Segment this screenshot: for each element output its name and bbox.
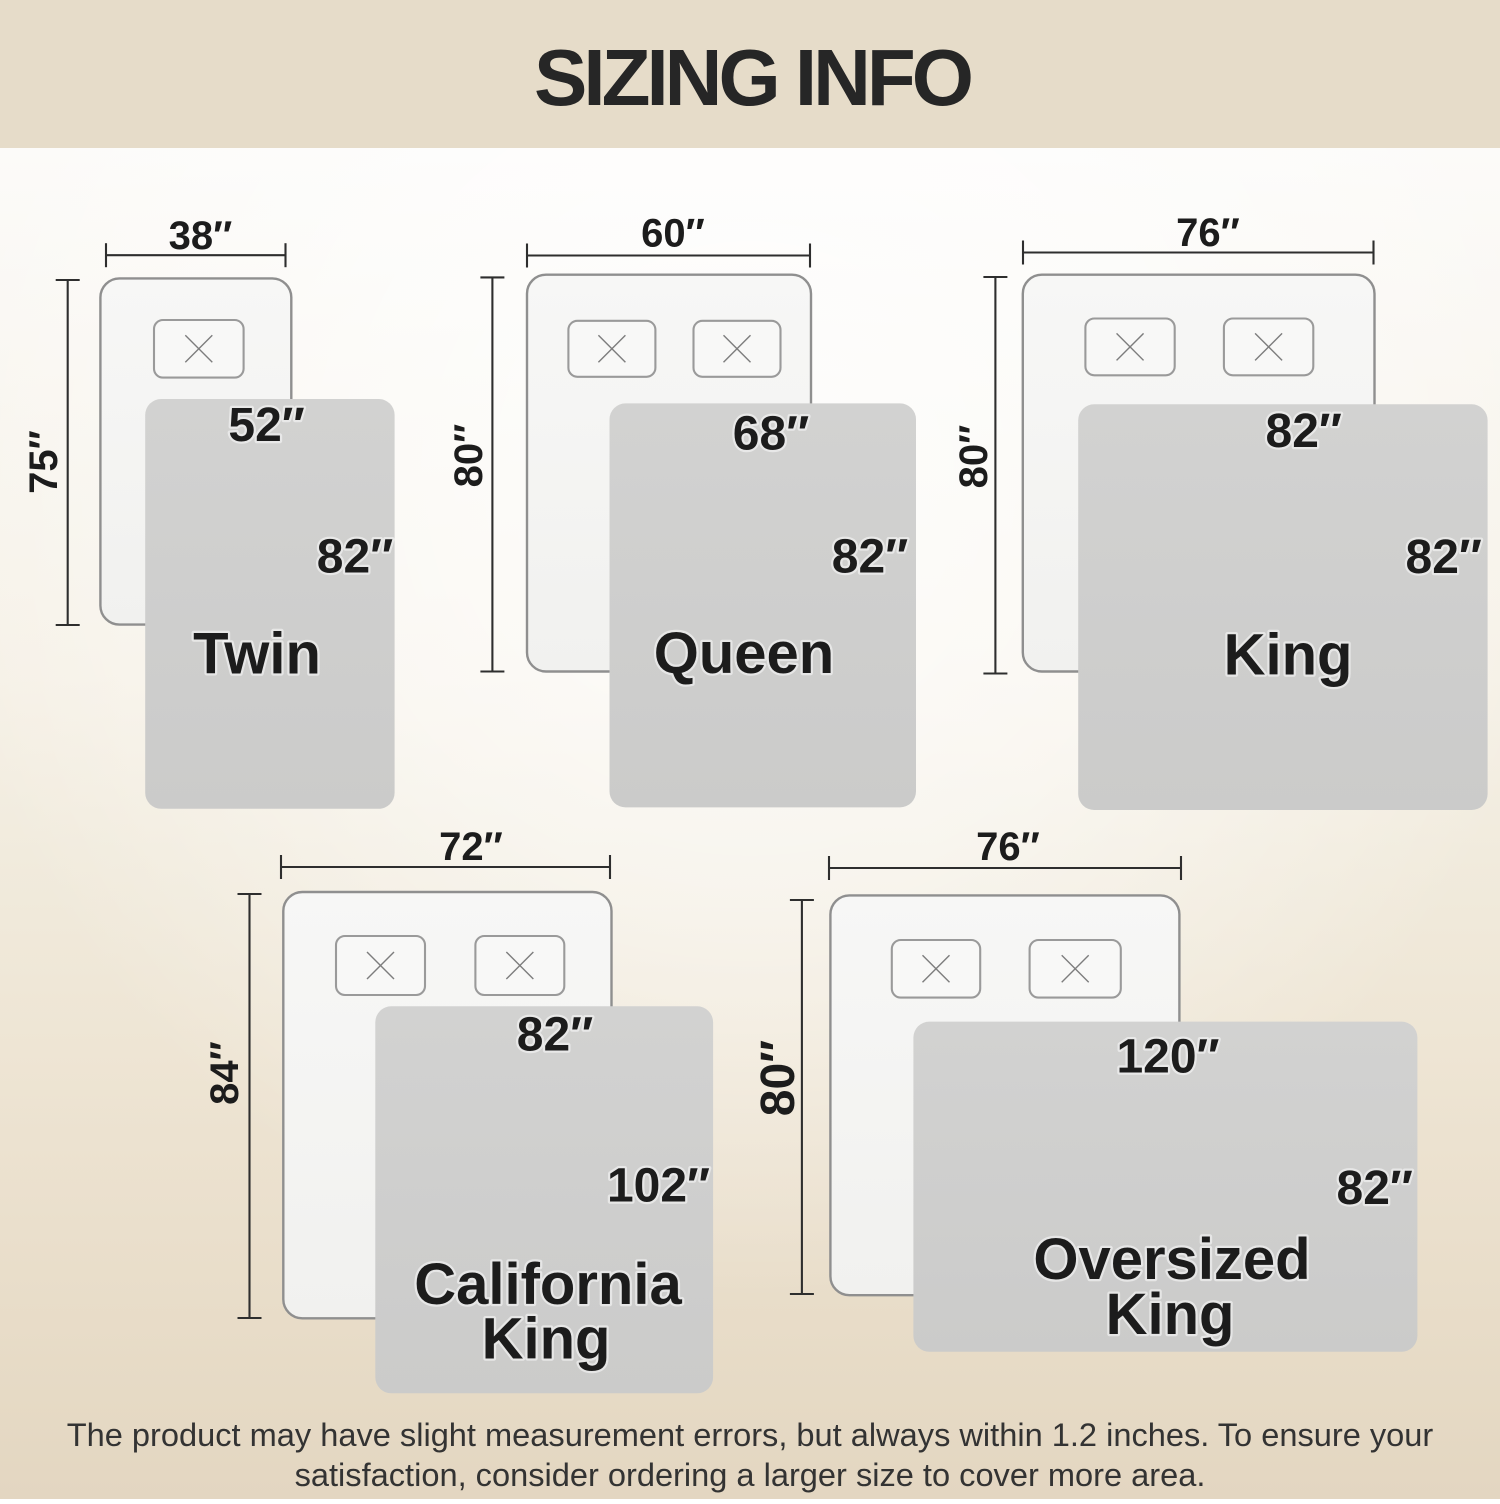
svg-text:The product may have slight me: The product may have slight measurement … [67,1416,1434,1453]
svg-text:68″: 68″ [733,408,809,461]
svg-text:84″: 84″ [203,1041,247,1105]
svg-text:82″: 82″ [1406,531,1482,584]
svg-text:82″: 82″ [1337,1162,1413,1215]
svg-text:SIZING INFO: SIZING INFO [534,33,971,122]
svg-text:38″: 38″ [169,214,233,258]
svg-text:75″: 75″ [22,430,66,494]
svg-text:80″: 80″ [752,1040,805,1116]
svg-text:King: King [482,1307,611,1372]
svg-text:120″: 120″ [1116,1031,1219,1084]
svg-text:82″: 82″ [832,531,908,584]
svg-text:King: King [1106,1282,1235,1347]
svg-text:80″: 80″ [952,425,996,489]
svg-text:60″: 60″ [641,212,705,256]
svg-text:76″: 76″ [976,825,1040,869]
svg-text:82″: 82″ [317,531,393,584]
svg-text:Twin: Twin [193,622,321,687]
svg-text:102″: 102″ [607,1160,710,1213]
svg-text:72″: 72″ [439,825,503,869]
svg-text:76″: 76″ [1176,211,1240,255]
svg-text:80″: 80″ [447,424,491,488]
svg-text:King: King [1224,623,1353,688]
svg-text:52″: 52″ [228,399,304,452]
svg-text:satisfaction, consider orderin: satisfaction, consider ordering a larger… [295,1456,1206,1493]
svg-text:Queen: Queen [654,621,835,686]
svg-text:82″: 82″ [1266,405,1342,458]
svg-text:82″: 82″ [517,1008,593,1061]
